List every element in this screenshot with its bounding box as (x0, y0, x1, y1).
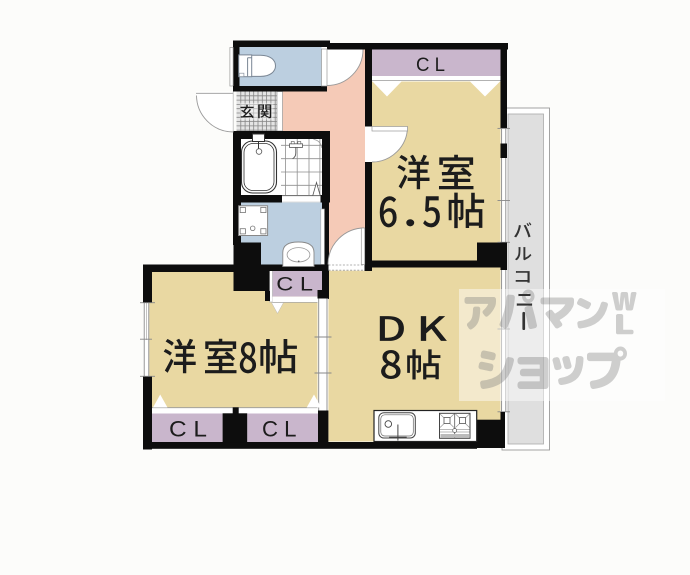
svg-text:C L: C L (276, 274, 313, 296)
svg-text:C L: C L (416, 55, 445, 76)
svg-text:C L: C L (262, 417, 297, 442)
svg-text:C L: C L (169, 417, 207, 442)
